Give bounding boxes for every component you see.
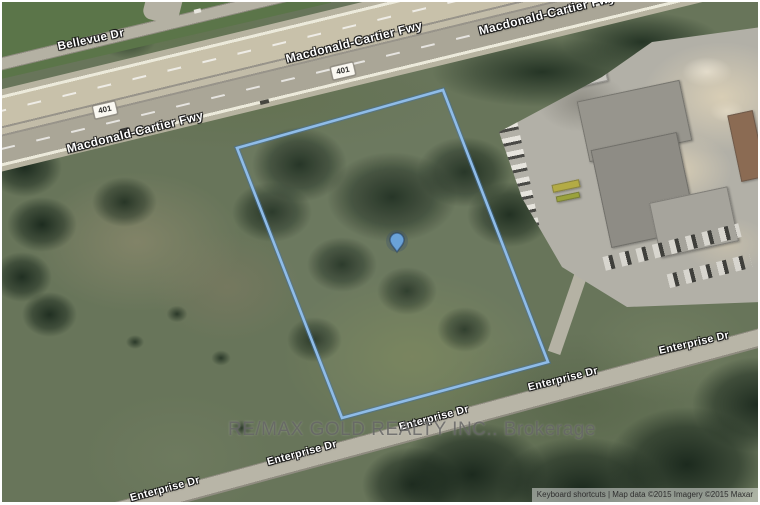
satellite-map-canvas[interactable]: Bellevue Dr Macdonald-Cartier Fwy Macdon…	[2, 2, 758, 502]
map-attribution-bar[interactable]: Keyboard shortcuts | Map data ©2015 Imag…	[532, 488, 758, 502]
property-marker-pin[interactable]	[386, 230, 408, 252]
map-screenshot-frame: Bellevue Dr Macdonald-Cartier Fwy Macdon…	[0, 0, 760, 505]
brokerage-watermark: RE/MAX GOLD REALTY INC.. Brokerage	[228, 419, 596, 441]
